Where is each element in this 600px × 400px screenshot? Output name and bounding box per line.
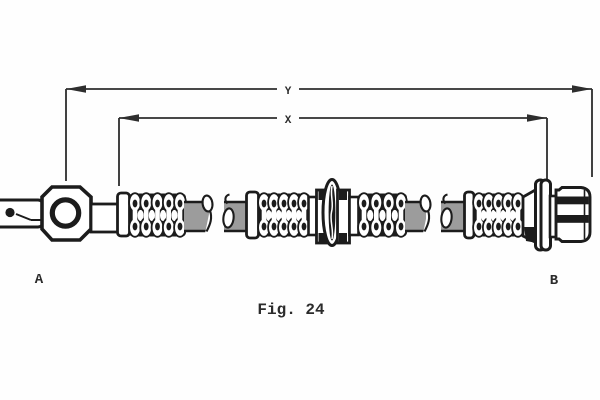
svg-text:Fig. 24: Fig. 24 bbox=[257, 301, 325, 319]
svg-text:Y: Y bbox=[285, 86, 292, 98]
svg-text:A: A bbox=[35, 272, 44, 288]
svg-text:X: X bbox=[285, 115, 292, 127]
svg-text:B: B bbox=[550, 273, 559, 289]
